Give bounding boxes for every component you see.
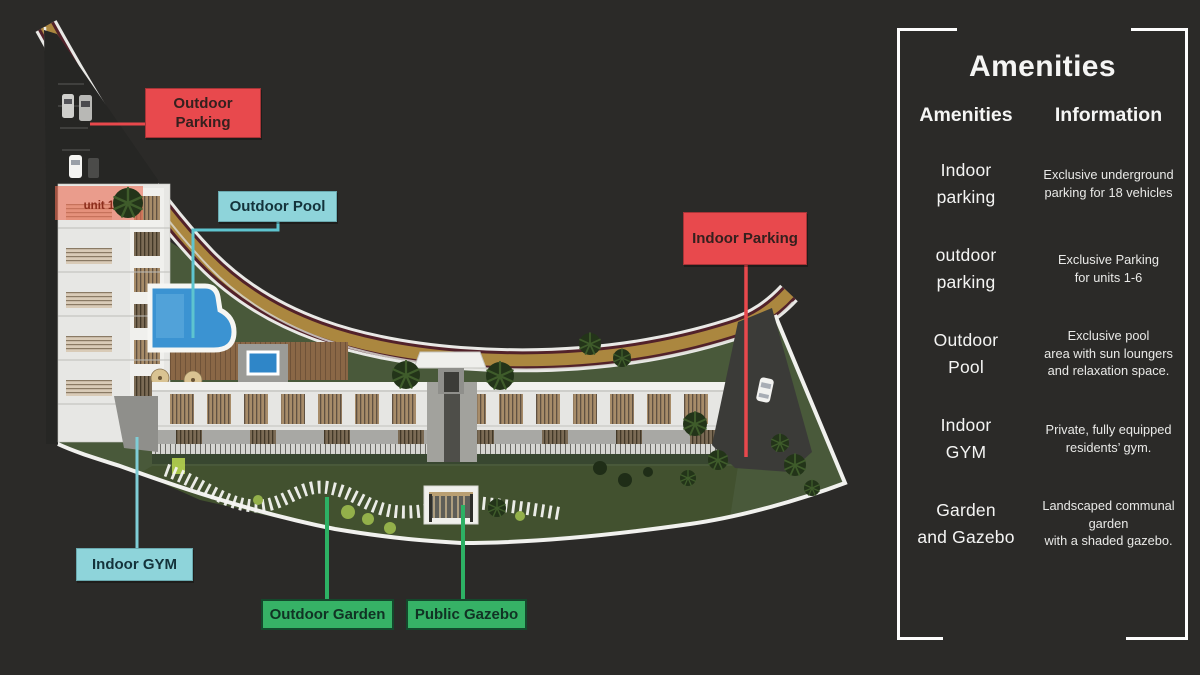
indoor-parking-label: Indoor Parking bbox=[683, 212, 807, 265]
amenity-info: Exclusive underground parking for 18 veh… bbox=[1032, 166, 1185, 202]
gazebo bbox=[424, 486, 478, 524]
panel-frame bbox=[897, 28, 957, 31]
jacuzzi bbox=[248, 352, 278, 374]
column-header-information: Information bbox=[1032, 104, 1185, 127]
amenities-panel: Amenities Amenities Information Indoor p… bbox=[897, 28, 1188, 640]
outdoor-pool-label: Outdoor Pool bbox=[218, 191, 337, 222]
slide: unit 1 bbox=[0, 0, 1200, 675]
outdoor-parking-label: Outdoor Parking bbox=[145, 88, 261, 138]
panel-frame bbox=[1131, 28, 1188, 31]
table-row: Indoor GYM Private, fully equipped resid… bbox=[900, 396, 1185, 481]
amenity-name: outdoor parking bbox=[900, 242, 1032, 295]
table-row: Outdoor Pool Exclusive pool area with su… bbox=[900, 311, 1185, 396]
amenity-name: Indoor GYM bbox=[900, 412, 1032, 465]
outdoor-garden-label: Outdoor Garden bbox=[261, 599, 394, 630]
amenity-info: Exclusive Parking for units 1-6 bbox=[1032, 251, 1185, 287]
panel-title: Amenities bbox=[900, 50, 1185, 84]
public-gazebo-label: Public Gazebo bbox=[406, 599, 527, 630]
amenity-name: Outdoor Pool bbox=[900, 327, 1032, 380]
indoor-gym-label: Indoor GYM bbox=[76, 548, 193, 581]
panel-frame bbox=[1126, 637, 1188, 640]
table-row: outdoor parking Exclusive Parking for un… bbox=[900, 226, 1185, 311]
table-row: Garden and Gazebo Landscaped communal ga… bbox=[900, 481, 1185, 566]
amenity-info: Landscaped communal garden with a shaded… bbox=[1032, 497, 1185, 551]
amenity-info: Private, fully equipped residents’ gym. bbox=[1032, 421, 1185, 457]
amenity-name: Garden and Gazebo bbox=[900, 497, 1032, 550]
amenities-table: Indoor parking Exclusive underground par… bbox=[900, 141, 1185, 566]
table-header: Amenities Information bbox=[900, 104, 1185, 127]
column-header-amenities: Amenities bbox=[900, 104, 1032, 127]
svg-text:unit 1: unit 1 bbox=[84, 200, 115, 212]
amenity-name: Indoor parking bbox=[900, 157, 1032, 210]
table-row: Indoor parking Exclusive underground par… bbox=[900, 141, 1185, 226]
amenity-info: Exclusive pool area with sun loungers an… bbox=[1032, 327, 1185, 381]
panel-frame bbox=[897, 637, 943, 640]
